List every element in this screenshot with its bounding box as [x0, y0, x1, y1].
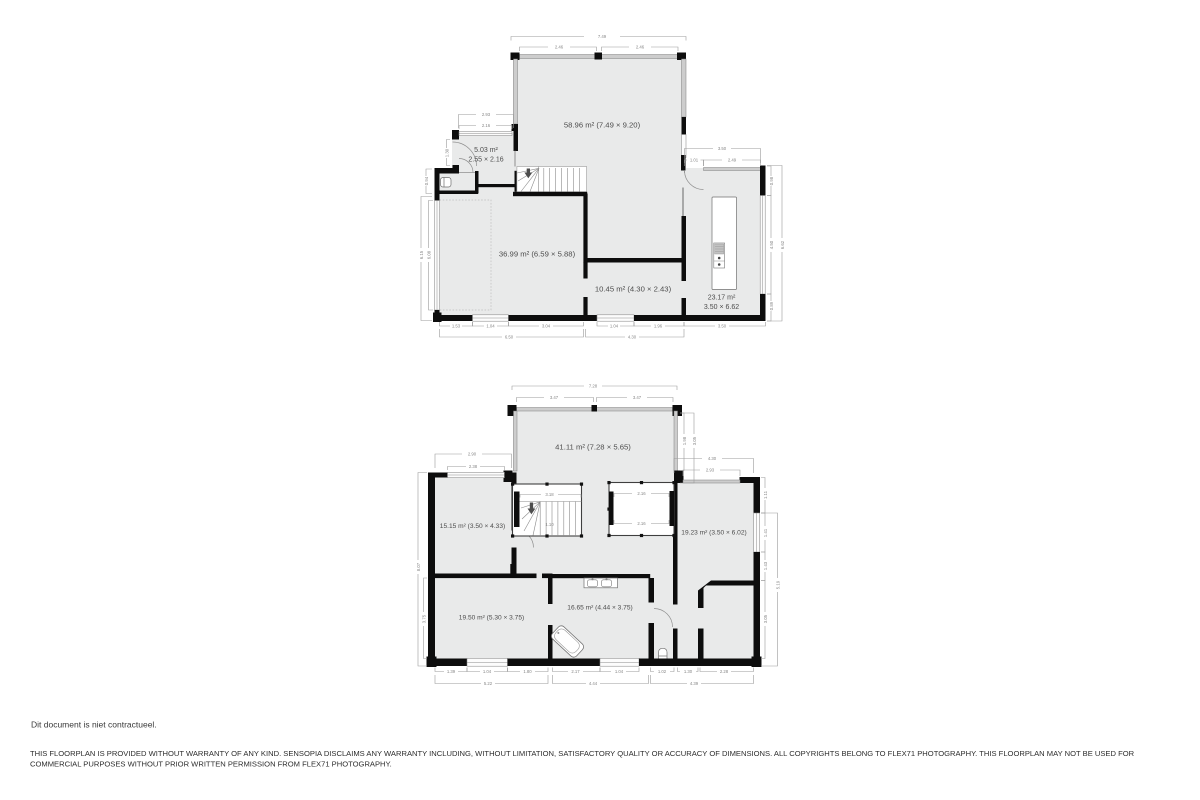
- svg-text:1.80: 1.80: [523, 669, 532, 674]
- svg-text:2.46: 2.46: [555, 45, 564, 50]
- svg-text:2.49: 2.49: [728, 158, 737, 163]
- svg-text:2.17: 2.17: [571, 669, 580, 674]
- svg-text:3.47: 3.47: [633, 395, 642, 400]
- svg-text:7.49: 7.49: [598, 34, 607, 39]
- svg-text:5.19: 5.19: [775, 580, 780, 589]
- svg-text:4.30: 4.30: [708, 456, 717, 461]
- svg-text:3.50 × 6.62: 3.50 × 6.62: [704, 304, 739, 311]
- svg-text:6.50: 6.50: [505, 335, 514, 340]
- svg-text:2.93: 2.93: [706, 468, 715, 473]
- svg-text:1.04: 1.04: [486, 324, 495, 329]
- svg-text:10.45 m² (4.30 × 2.43): 10.45 m² (4.30 × 2.43): [595, 285, 672, 294]
- svg-text:2.55 × 2.16: 2.55 × 2.16: [468, 157, 503, 164]
- svg-text:41.11 m² (7.28 × 5.65): 41.11 m² (7.28 × 5.65): [555, 443, 631, 452]
- svg-text:2.38: 2.38: [469, 464, 478, 469]
- svg-text:1.96: 1.96: [654, 324, 663, 329]
- svg-text:3.05: 3.05: [763, 614, 768, 623]
- svg-text:1.10: 1.10: [545, 522, 554, 527]
- svg-text:4.44: 4.44: [589, 681, 598, 686]
- svg-text:4.39: 4.39: [690, 681, 699, 686]
- svg-text:2.93: 2.93: [482, 112, 491, 117]
- svg-text:0.94: 0.94: [424, 176, 429, 185]
- svg-text:23.17 m²: 23.17 m²: [708, 295, 736, 302]
- svg-text:1.04: 1.04: [483, 669, 492, 674]
- svg-text:COMMERCIAL PURPOSES WITHOUT PR: COMMERCIAL PURPOSES WITHOUT PRIOR WRITTE…: [30, 760, 392, 769]
- svg-text:1.53: 1.53: [452, 324, 461, 329]
- svg-text:16.65 m² (4.44 × 3.75): 16.65 m² (4.44 × 3.75): [567, 605, 632, 612]
- svg-text:1.98: 1.98: [682, 436, 687, 445]
- svg-text:4.50: 4.50: [769, 240, 774, 249]
- svg-text:8.07: 8.07: [416, 562, 421, 571]
- svg-text:19.23 m² (3.50 × 6.02): 19.23 m² (3.50 × 6.02): [681, 530, 746, 537]
- svg-text:5.22: 5.22: [484, 681, 493, 686]
- svg-text:1.04: 1.04: [610, 324, 619, 329]
- svg-text:3.75: 3.75: [421, 614, 426, 623]
- svg-text:0.89: 0.89: [769, 301, 774, 310]
- svg-text:3.18: 3.18: [545, 492, 554, 497]
- svg-text:6.15: 6.15: [419, 250, 424, 259]
- svg-text:6.08: 6.08: [426, 250, 431, 259]
- svg-text:3.47: 3.47: [550, 395, 559, 400]
- svg-text:Dit document is niet contractu: Dit document is niet contractueel.: [31, 720, 157, 730]
- svg-text:1.11: 1.11: [763, 490, 768, 499]
- svg-text:1.30: 1.30: [684, 669, 693, 674]
- svg-text:2.16: 2.16: [637, 521, 646, 526]
- svg-text:1.41: 1.41: [763, 528, 768, 537]
- svg-text:2.90: 2.90: [468, 452, 477, 457]
- svg-text:6.62: 6.62: [780, 240, 785, 249]
- svg-text:5.03 m²: 5.03 m²: [474, 147, 498, 154]
- svg-text:1.01: 1.01: [690, 158, 699, 163]
- svg-text:2.16: 2.16: [482, 123, 491, 128]
- svg-text:1.30: 1.30: [444, 148, 449, 157]
- svg-text:3.05: 3.05: [692, 436, 697, 445]
- svg-text:19.50 m² (5.30 × 3.75): 19.50 m² (5.30 × 3.75): [459, 615, 524, 622]
- svg-text:2.28: 2.28: [720, 669, 729, 674]
- svg-text:36.99 m² (6.59 × 5.88): 36.99 m² (6.59 × 5.88): [499, 250, 576, 259]
- svg-text:2.46: 2.46: [636, 45, 645, 50]
- svg-text:7.28: 7.28: [589, 384, 598, 389]
- svg-text:3.50: 3.50: [718, 146, 727, 151]
- svg-text:3.50: 3.50: [718, 324, 727, 329]
- svg-text:1.04: 1.04: [615, 669, 624, 674]
- svg-text:0.98: 0.98: [769, 176, 774, 185]
- svg-text:1.02: 1.02: [658, 669, 667, 674]
- svg-text:4.30: 4.30: [628, 335, 637, 340]
- svg-text:THIS FLOORPLAN IS PROVIDED WIT: THIS FLOORPLAN IS PROVIDED WITHOUT WARRA…: [30, 749, 1135, 758]
- svg-text:3.04: 3.04: [542, 324, 551, 329]
- svg-text:1.39: 1.39: [447, 669, 456, 674]
- svg-text:15.15 m² (3.50 × 4.33): 15.15 m² (3.50 × 4.33): [440, 523, 505, 530]
- svg-text:1.43: 1.43: [763, 561, 768, 570]
- svg-text:2.16: 2.16: [637, 491, 646, 496]
- svg-text:58.96 m² (7.49 × 9.20): 58.96 m² (7.49 × 9.20): [564, 121, 641, 130]
